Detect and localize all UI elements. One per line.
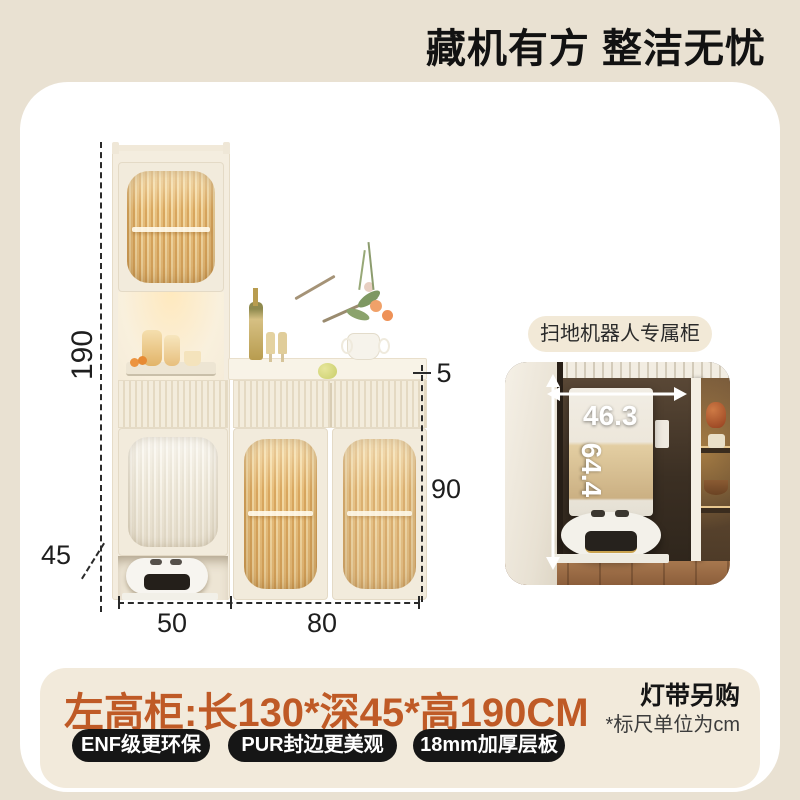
robot-dock-niche: [118, 556, 228, 600]
glass-carafe: [164, 335, 180, 366]
ceramic-pot: [708, 434, 725, 448]
inset-caption-pill: 扫地机器人专属柜: [528, 316, 712, 352]
top-thickness-label: 5: [432, 358, 456, 389]
unit-note: *标尺单位为cm: [606, 708, 740, 737]
page-title: 藏机有方 整洁无忧: [426, 16, 766, 74]
champagne-flute: [266, 332, 275, 354]
robot-display: [144, 574, 190, 590]
upper-door-fluted-glass: [127, 171, 215, 283]
leaf-spray: [345, 306, 371, 323]
drinking-glass: [184, 351, 201, 366]
cabinet-divider-panel: [691, 378, 701, 561]
body-height-label: 90: [424, 474, 468, 505]
robot-vacuum: [126, 558, 208, 594]
dock-mat: [553, 554, 669, 563]
left-drawer: [118, 380, 228, 428]
robot-fin: [170, 559, 182, 565]
sideboard-right-shelf: [347, 511, 411, 516]
spec-panel: 左高柜:长130*深45*高190CM 灯带另购 *标尺单位为cm ENF级更环…: [40, 668, 760, 788]
lower-left-glass-door: [118, 428, 228, 556]
wooden-bowl: [704, 480, 728, 495]
top-thickness-tick: [413, 372, 431, 374]
pear-fruit: [318, 363, 337, 379]
upper-glass-door: [118, 162, 224, 292]
champagne-bottle-neck: [253, 288, 258, 306]
niche-height-arrow-icon: [543, 374, 563, 570]
orange-slice: [138, 356, 147, 365]
terracotta-jar: [706, 402, 726, 428]
width-dimension-line: [118, 602, 420, 604]
rose-blossom: [382, 310, 393, 321]
width-tick-left: [118, 596, 120, 609]
body-height-dimension-line: [421, 365, 423, 602]
width-right-label: 80: [272, 608, 372, 639]
robot-cabinet-photo: 46.3 64.4: [505, 362, 730, 585]
champagne-flute: [278, 332, 287, 354]
robot-mat: [122, 593, 218, 600]
upper-door-shelf: [132, 227, 209, 232]
right-drawers: [233, 380, 427, 428]
rose-blossom: [370, 300, 382, 312]
upper-shelf-slats: [557, 362, 730, 378]
badge-pur: PUR封边更美观: [228, 729, 397, 762]
cabinet-top-rail-right: [223, 142, 230, 154]
power-outlet: [655, 420, 669, 448]
height-dimension-label: 190: [66, 320, 100, 390]
vase-handle: [341, 338, 353, 354]
drawer-divider: [330, 383, 332, 427]
robot-fin-photo: [615, 510, 629, 517]
height-dimension-line: [100, 142, 102, 612]
light-strip-note: 灯带另购: [640, 676, 740, 712]
robot-fin-photo: [591, 510, 605, 517]
cabinet-top-rail-left: [112, 142, 119, 154]
sideboard-left-shelf: [248, 511, 312, 516]
flute-stem: [269, 354, 272, 362]
lower-left-fluted-glass: [128, 437, 218, 547]
badge-18mm: 18mm加厚层板: [413, 729, 565, 762]
cabinet-back-rail: [119, 145, 223, 151]
width-tick-right: [418, 596, 420, 609]
robot-fin: [150, 559, 162, 565]
shelf-board: [701, 506, 730, 513]
product-detail-page: 藏机有方 整洁无忧 190 45: [0, 0, 800, 800]
robot-display-photo: [585, 531, 637, 553]
badge-enf: ENF级更环保: [72, 729, 210, 762]
width-left-label: 50: [122, 608, 222, 639]
width-tick-middle: [230, 596, 232, 609]
robot-vacuum-photo: [561, 512, 661, 558]
niche-width-label: 46.3: [583, 400, 638, 432]
champagne-bottle: [249, 302, 263, 360]
sideboard-door-right-glass: [343, 439, 416, 589]
open-shelf-niche: [118, 292, 224, 380]
sideboard-door-right: [332, 428, 427, 600]
content-card: 190 45: [20, 82, 780, 792]
sideboard-door-left: [233, 428, 328, 600]
depth-dimension-label: 45: [34, 540, 78, 571]
flower-branch: [294, 275, 335, 301]
niche-height-label: 64.4: [575, 432, 607, 508]
flute-stem: [281, 354, 284, 362]
vase-handle: [378, 338, 390, 354]
sideboard-door-left-glass: [244, 439, 317, 589]
